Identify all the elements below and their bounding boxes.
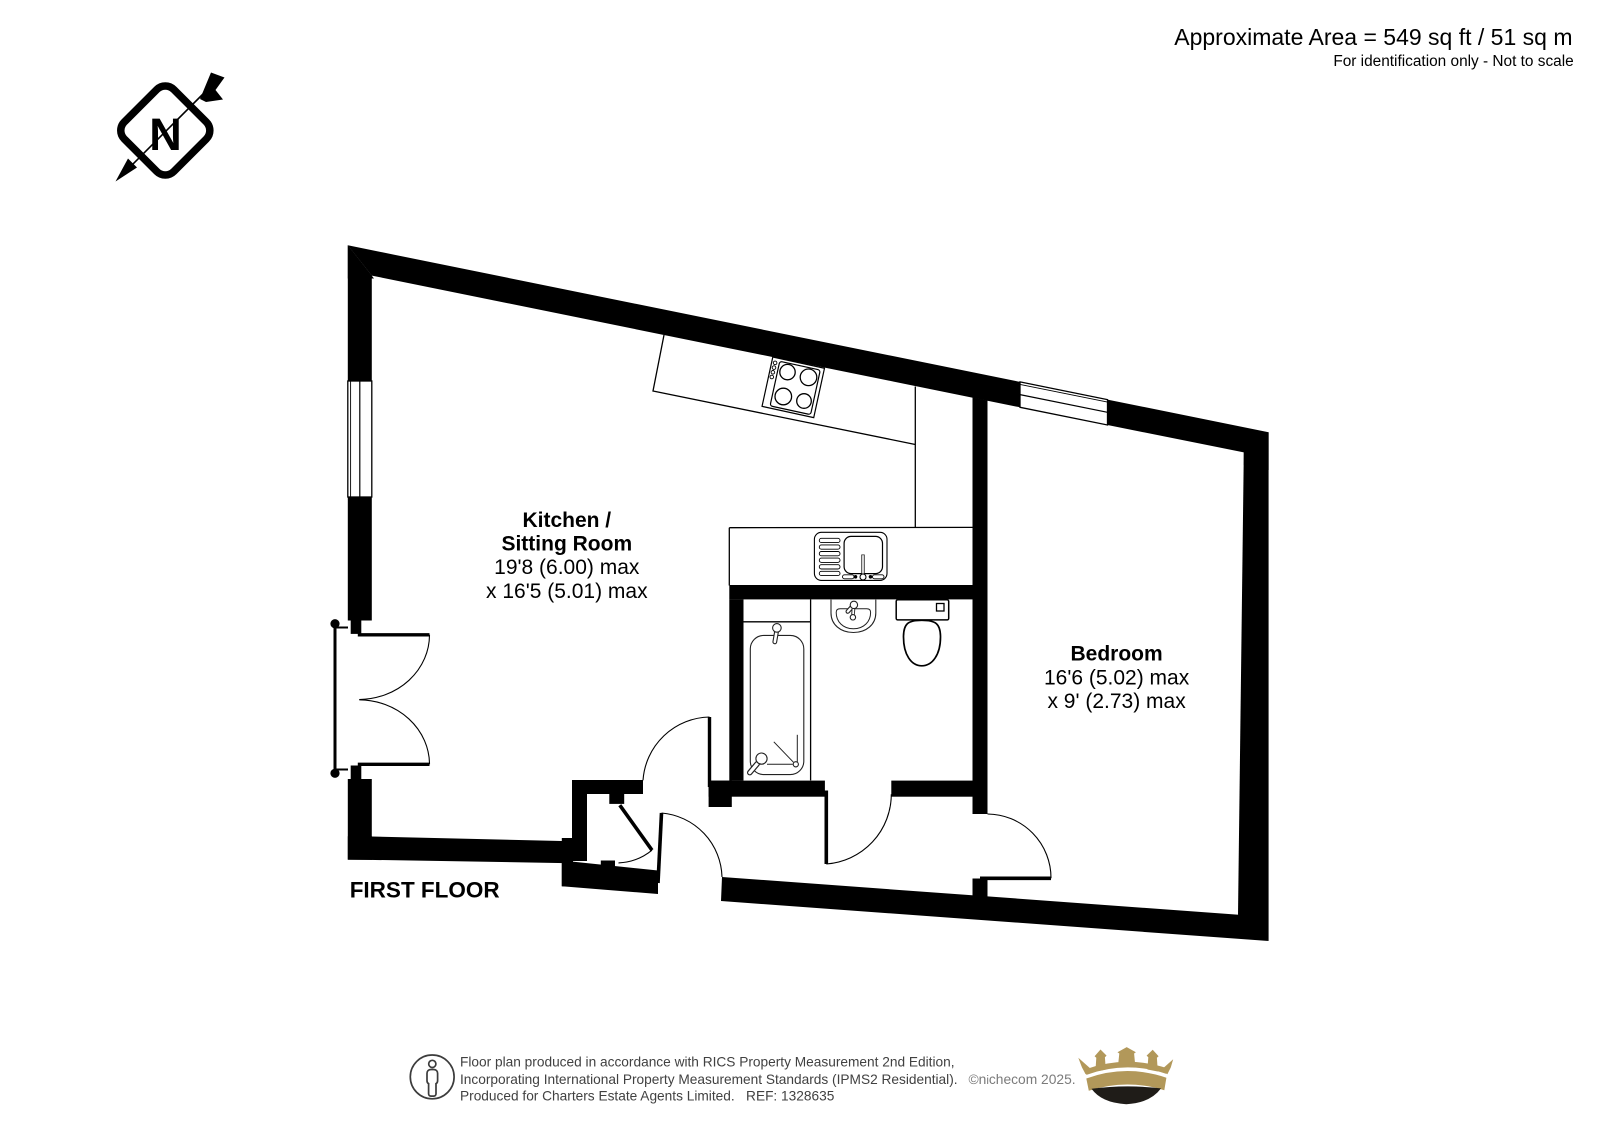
svg-text:©nichecom 2025.: ©nichecom 2025. bbox=[969, 1072, 1076, 1087]
svg-text:Bedroom: Bedroom bbox=[1071, 643, 1163, 666]
svg-text:Incorporating International Pr: Incorporating International Property Mea… bbox=[460, 1072, 958, 1087]
svg-text:Floor plan produced in accorda: Floor plan produced in accordance with R… bbox=[460, 1055, 955, 1070]
svg-text:Sitting Room: Sitting Room bbox=[501, 533, 632, 556]
svg-text:N: N bbox=[149, 109, 182, 160]
svg-text:For identification only - Not: For identification only - Not to scale bbox=[1333, 53, 1573, 70]
svg-text:x 16'5 (5.01) max: x 16'5 (5.01) max bbox=[486, 580, 648, 603]
svg-text:FIRST FLOOR: FIRST FLOOR bbox=[350, 878, 500, 903]
svg-text:19'8 (6.00) max: 19'8 (6.00) max bbox=[494, 556, 640, 579]
svg-text:Kitchen /: Kitchen / bbox=[522, 509, 611, 532]
svg-text:x 9' (2.73) max: x 9' (2.73) max bbox=[1047, 690, 1186, 713]
svg-text:Approximate Area = 549 sq ft /: Approximate Area = 549 sq ft / 51 sq m bbox=[1174, 24, 1572, 50]
svg-text:16'6 (5.02) max: 16'6 (5.02) max bbox=[1044, 666, 1190, 689]
svg-text:Produced for Charters Estate A: Produced for Charters Estate Agents Limi… bbox=[460, 1089, 835, 1104]
